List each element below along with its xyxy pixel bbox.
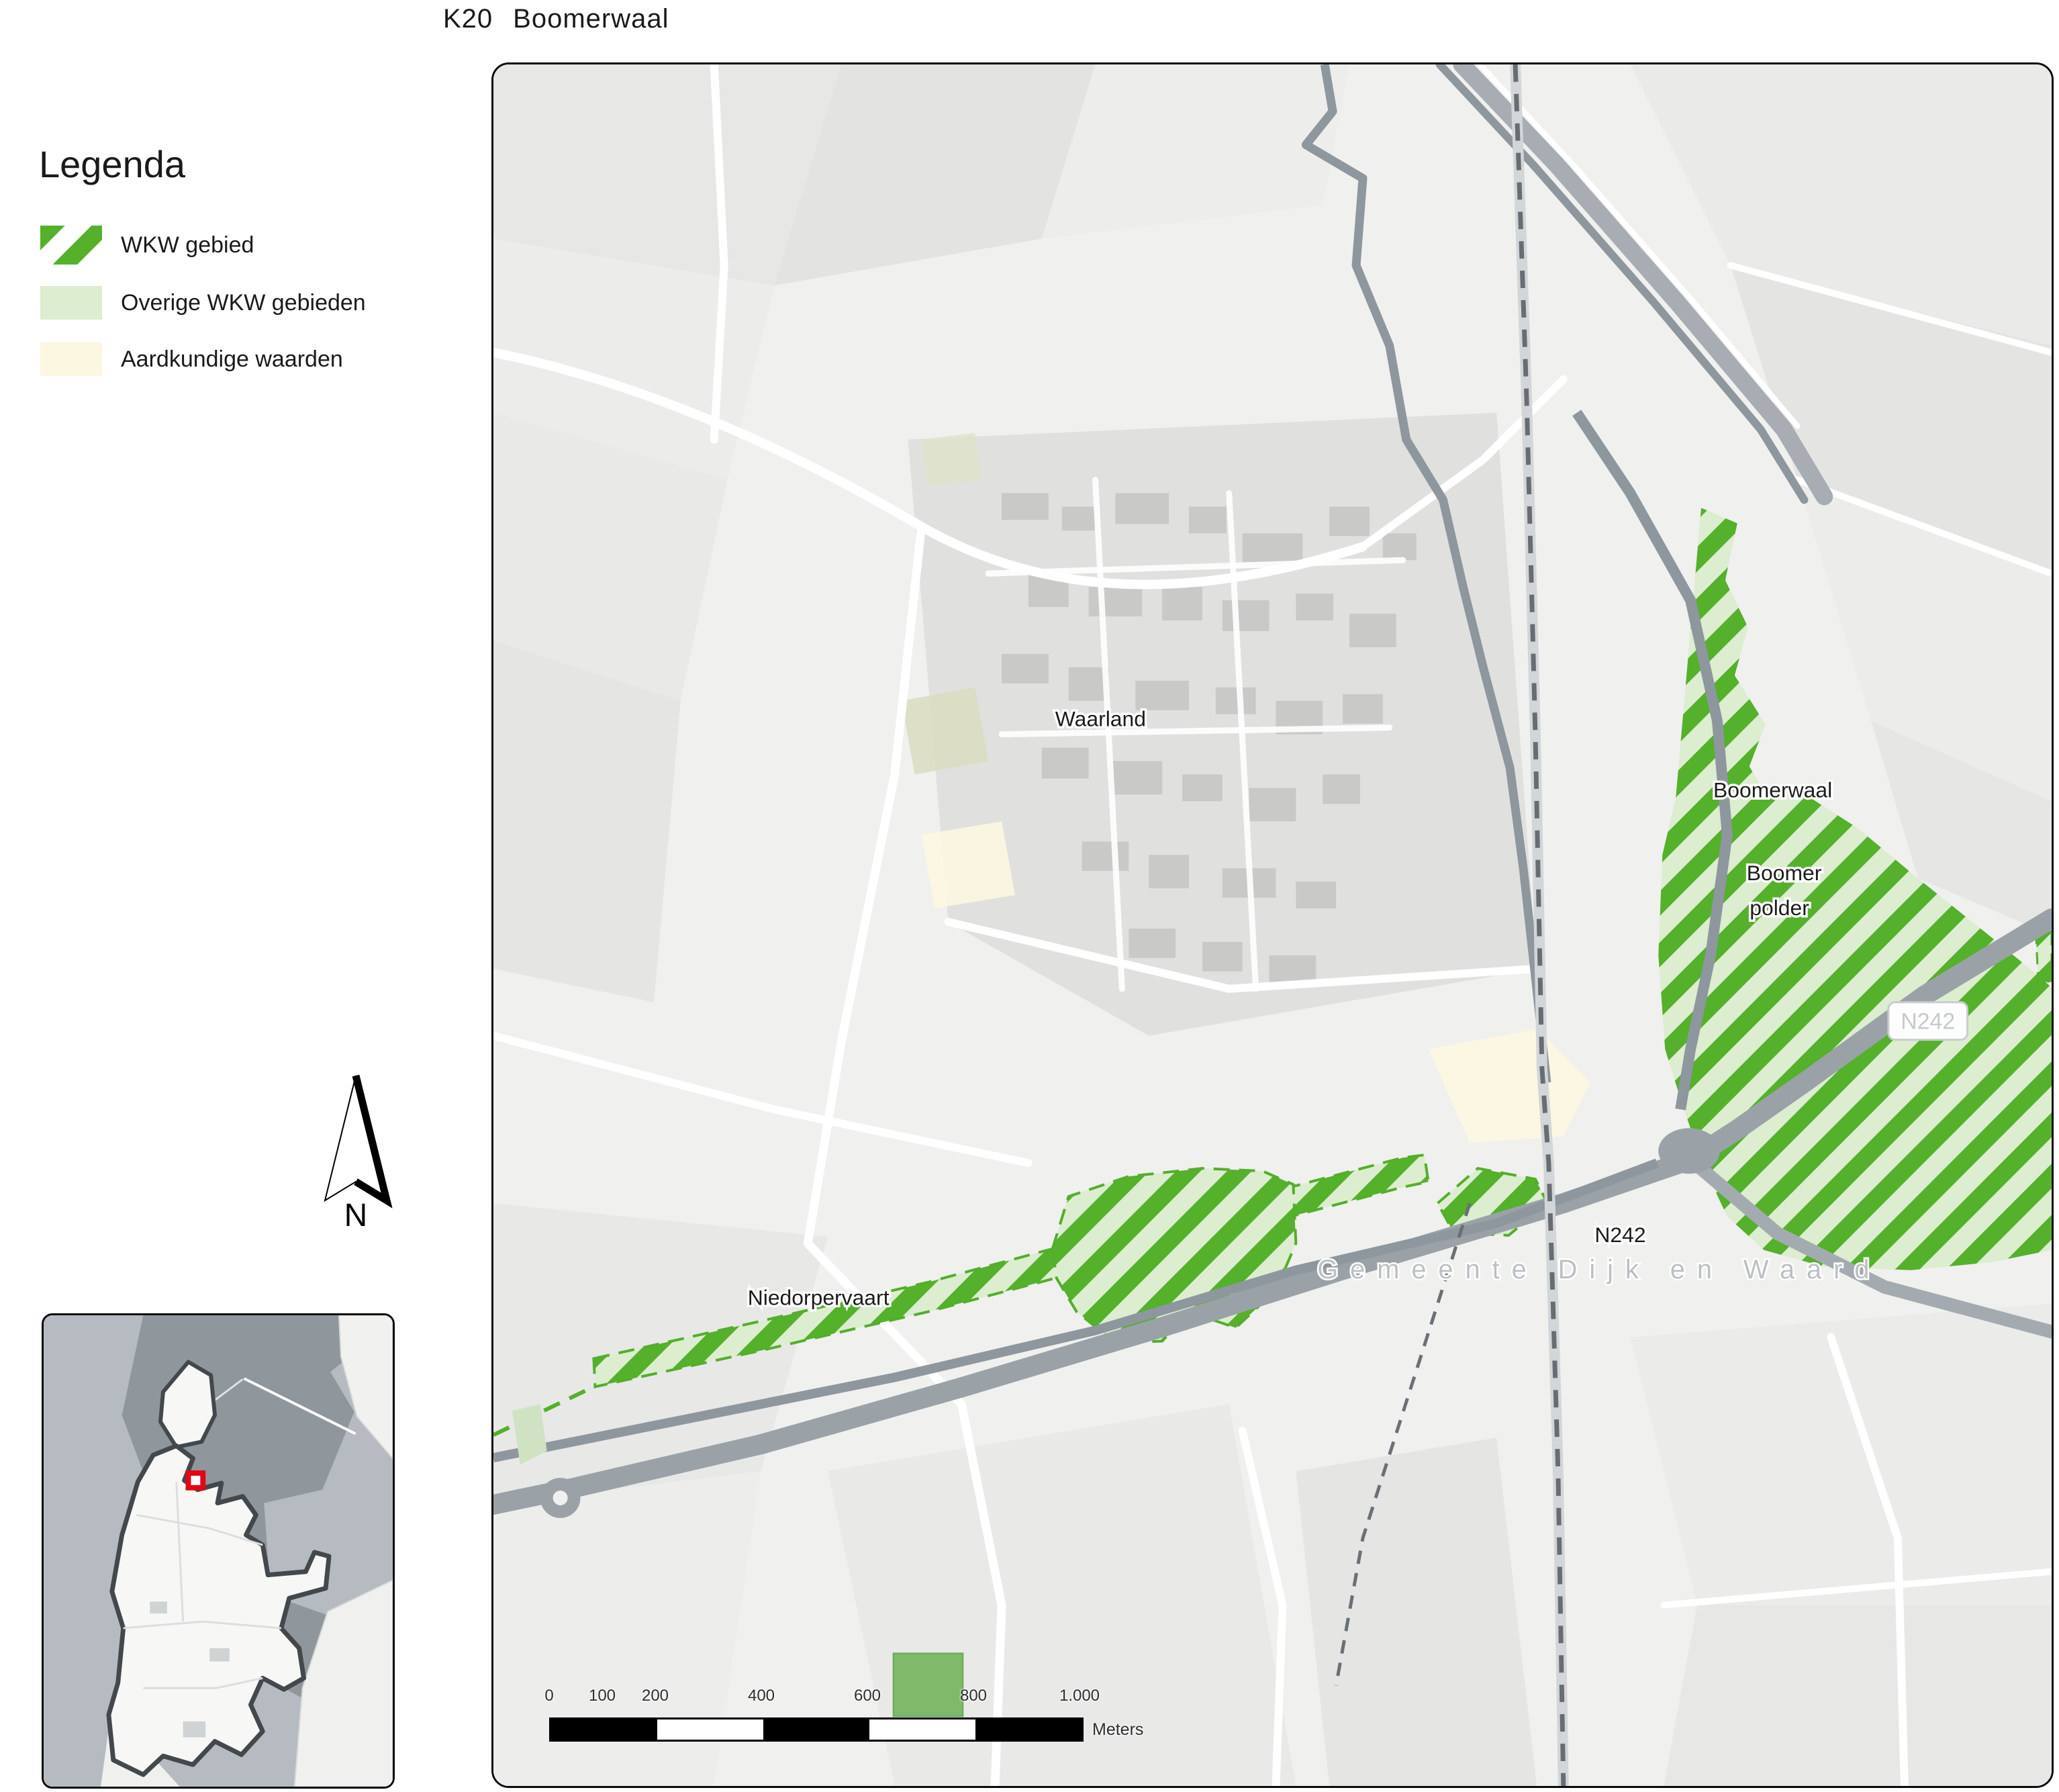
boomer-polder-label-line1: Boomer: [1747, 861, 1822, 885]
boomer-polder-label-line2: polder: [1750, 896, 1809, 920]
page-title: K20 Boomerwaal: [443, 4, 669, 34]
park-area: [894, 1653, 963, 1716]
aardkundige-swatch-icon: [40, 342, 102, 376]
main-map-canvas: N242 Waarland Boomerwaal Boomer polder N…: [493, 64, 2052, 1786]
overige-wkw-swatch-icon: [40, 286, 102, 320]
legend-heading: Legenda: [39, 142, 185, 186]
main-map: N242 Waarland Boomerwaal Boomer polder N…: [491, 62, 2054, 1788]
legend-item-label: Aardkundige waarden: [121, 346, 343, 373]
legend-item-overige-wkw: Overige WKW gebieden: [40, 286, 366, 320]
legend-item-label: WKW gebied: [121, 232, 254, 258]
road-shield-label: N242: [1901, 1009, 1955, 1035]
north-arrow-label: N: [344, 1198, 368, 1229]
road-shield: N242: [1888, 1002, 1968, 1040]
legend-item-wkw-gebied: WKW gebied: [40, 226, 254, 265]
legend-item-label: Overige WKW gebieden: [121, 290, 366, 316]
municipality-label: Gemeente Dijk en Waard: [1317, 1255, 1881, 1284]
boomerwaal-label: Boomerwaal: [1713, 777, 1832, 802]
map-document: K20 Boomerwaal Legenda WKW gebied Overig…: [0, 0, 2059, 1792]
locator-map-canvas: [44, 1315, 393, 1787]
north-arrow-icon: N: [314, 1069, 403, 1229]
legend-item-aardkundige-waarden: Aardkundige waarden: [40, 342, 343, 376]
niedorpervaart-label: Niedorpervaart: [748, 1286, 890, 1310]
n242-label: N242: [1594, 1223, 1645, 1247]
map-name: Boomerwaal: [513, 4, 669, 34]
town-label: Waarland: [1055, 707, 1146, 731]
locator-inset-map: [42, 1313, 395, 1789]
map-code: K20: [443, 4, 493, 34]
locator-marker: [189, 1473, 203, 1488]
wkw-hatch-swatch-icon: [40, 226, 102, 265]
